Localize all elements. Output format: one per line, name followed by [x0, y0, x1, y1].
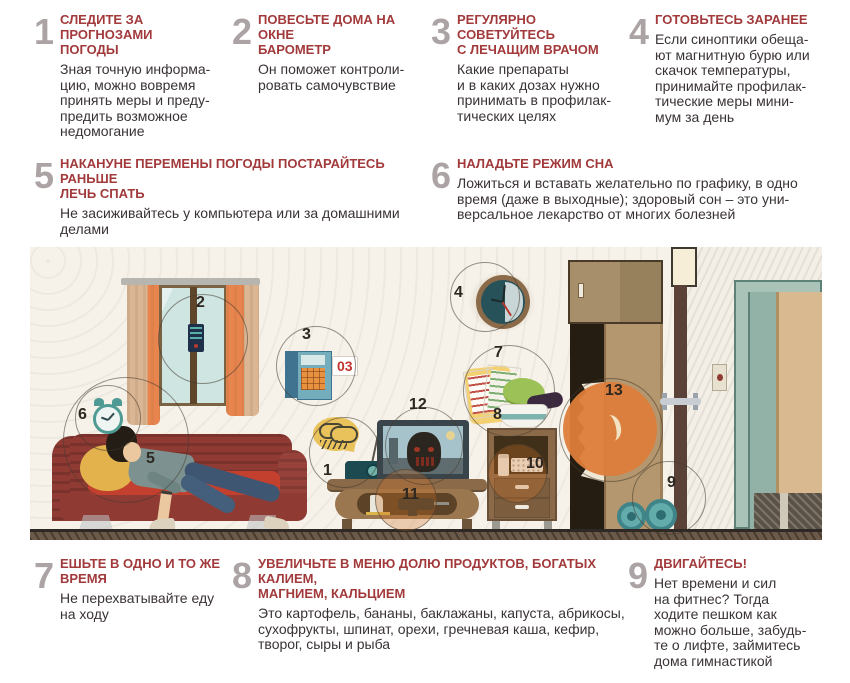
tip-4-number: 4 — [629, 14, 649, 50]
tip-1: 1 СЛЕДИТЕ ЗА ПРОГНОЗАМИ ПОГОДЫ Зная точн… — [34, 12, 234, 140]
tip-6-title: НАЛАДЬТЕ РЕЖИМ СНА — [457, 156, 843, 171]
tip-6-body: Ложиться и вставать желательно по график… — [457, 176, 843, 223]
tip-8: 8 УВЕЛИЧЬТЕ В МЕНЮ ДОЛЮ ПРОДУКТОВ, БОГАТ… — [232, 556, 644, 653]
tip-7-number: 7 — [34, 558, 54, 594]
table-leg — [462, 519, 472, 529]
tip-5-title: НАКАНУНЕ ПЕРЕМЕНЫ ПОГОДЫ ПОСТАРАЙТЕСЬ РА… — [60, 156, 434, 201]
marker-number-6: 6 — [78, 407, 87, 423]
marker-number-10: 10 — [526, 456, 544, 472]
tip-6: 6 НАЛАДЬТЕ РЕЖИМ СНА Ложиться и вставать… — [431, 156, 843, 223]
tip-5-body: Не засиживайтесь у компьютера или за дом… — [60, 206, 434, 237]
tip-4: 4 ГОТОВЬТЕСЬ ЗАРАНЕЕ Если синоптики обещ… — [629, 12, 847, 125]
marker-number-7: 7 — [494, 345, 503, 361]
table-leg — [342, 519, 352, 529]
wardrobe-top-handle — [578, 283, 584, 298]
tip-1-number: 1 — [34, 14, 54, 50]
tip-3-number: 3 — [431, 14, 451, 50]
marker-number-4: 4 — [454, 285, 463, 301]
marker-number-11: 11 — [402, 487, 419, 503]
tip-4-title: ГОТОВЬТЕСЬ ЗАРАНЕЕ — [655, 12, 847, 27]
door-top-panel — [671, 247, 697, 287]
marker-number-2: 2 — [196, 295, 205, 311]
tip-9-number: 9 — [628, 558, 648, 594]
marker-number-13: 13 — [605, 383, 623, 399]
tip-3-title: РЕГУЛЯРНО СОВЕТУЙТЕСЬ С ЛЕЧАЩИМ ВРАЧОМ — [457, 12, 627, 57]
tip-8-body: Это картофель, бананы, баклажаны, капуст… — [258, 606, 644, 653]
tip-5-number: 5 — [34, 158, 54, 194]
tip-3: 3 РЕГУЛЯРНО СОВЕТУЙТЕСЬ С ЛЕЧАЩИМ ВРАЧОМ… — [431, 12, 627, 124]
marker-number-8: 8 — [493, 407, 502, 423]
tip-7: 7 ЕШЬТЕ В ОДНО И ТО ЖЕ ВРЕМЯ Не перехват… — [34, 556, 244, 622]
door-handle — [660, 398, 701, 405]
tip-9-title: ДВИГАЙТЕСЬ! — [654, 556, 844, 571]
marker-circle-1 — [309, 417, 380, 488]
tip-2-number: 2 — [232, 14, 252, 50]
tip-8-number: 8 — [232, 558, 252, 594]
marker-circle-12 — [385, 407, 463, 485]
tip-1-body: Зная точную информа- цию, можно вовремя … — [60, 62, 234, 140]
tip-1-title: СЛЕДИТЕ ЗА ПРОГНОЗАМИ ПОГОДЫ — [60, 12, 234, 57]
curtain-rod — [121, 278, 260, 285]
tip-5: 5 НАКАНУНЕ ПЕРЕМЕНЫ ПОГОДЫ ПОСТАРАЙТЕСЬ … — [34, 156, 434, 237]
marker-circle-7 — [463, 345, 555, 437]
tip-2-body: Он поможет контроли- ровать самочувствие — [258, 62, 428, 93]
marker-number-9: 9 — [667, 475, 676, 491]
marker-number-1: 1 — [323, 463, 332, 479]
infographic-poster: 1 СЛЕДИТЕ ЗА ПРОГНОЗАМИ ПОГОДЫ Зная точн… — [0, 0, 850, 683]
tip-6-number: 6 — [431, 158, 451, 194]
cabinet-leg — [544, 521, 552, 529]
room-illustration: 03 — [30, 247, 822, 540]
tip-2-title: ПОВЕСЬТЕ ДОМА НА ОКНЕ БАРОМЕТР — [258, 12, 428, 57]
marker-circle-3 — [276, 326, 356, 406]
doorstep — [754, 493, 822, 529]
tip-2: 2 ПОВЕСЬТЕ ДОМА НА ОКНЕ БАРОМЕТР Он помо… — [232, 12, 428, 93]
tip-9: 9 ДВИГАЙТЕСЬ! Нет времени и сил на фитне… — [628, 556, 844, 669]
marker-number-3: 3 — [302, 327, 311, 343]
marker-circle-10 — [488, 444, 547, 503]
cabinet-leg — [492, 521, 500, 529]
tip-7-body: Не перехватывайте еду на ходу — [60, 591, 244, 622]
tip-7-title: ЕШЬТЕ В ОДНО И ТО ЖЕ ВРЕМЯ — [60, 556, 244, 586]
marker-number-5: 5 — [146, 451, 155, 467]
tip-3-body: Какие препараты и в каких дозах нужно пр… — [457, 62, 627, 124]
marker-circle-9 — [632, 461, 706, 535]
marker-number-12: 12 — [409, 397, 427, 413]
light-switch — [712, 364, 727, 391]
tip-8-title: УВЕЛИЧЬТЕ В МЕНЮ ДОЛЮ ПРОДУКТОВ, БОГАТЫХ… — [258, 556, 644, 601]
floor — [30, 529, 822, 540]
tip-9-body: Нет времени и сил на фитнес? Тогда ходит… — [654, 576, 844, 669]
tip-4-body: Если синоптики обеща- ют магнитную бурю … — [655, 32, 847, 125]
